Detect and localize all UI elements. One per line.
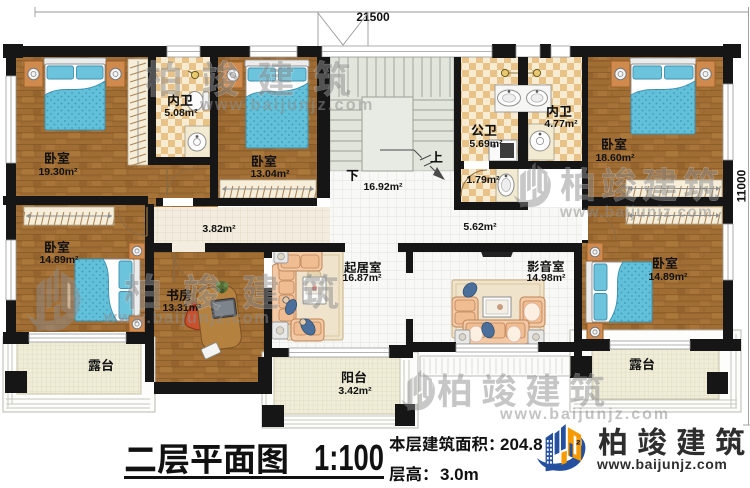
svg-text:16.87m²: 16.87m² xyxy=(342,272,382,284)
svg-text:²: ² xyxy=(576,437,581,452)
svg-text:14.98m²: 14.98m² xyxy=(526,272,566,284)
svg-text:3.42m²: 3.42m² xyxy=(338,385,372,397)
svg-text:3.0m: 3.0m xyxy=(440,465,479,484)
svg-text:www.baijunjz.com: www.baijunjz.com xyxy=(559,204,713,221)
svg-text:3.82m²: 3.82m² xyxy=(202,223,236,235)
svg-text:14.89m²: 14.89m² xyxy=(648,271,688,283)
svg-text:www.baijunjz.com: www.baijunjz.com xyxy=(596,456,727,472)
svg-text:11000: 11000 xyxy=(735,169,749,202)
svg-text:14.89m²: 14.89m² xyxy=(39,254,79,266)
svg-text:1.79m²: 1.79m² xyxy=(466,174,500,186)
svg-text:18.60m²: 18.60m² xyxy=(595,152,635,164)
svg-text:www.baijunjz.com: www.baijunjz.com xyxy=(199,96,374,114)
svg-text:5.69m²: 5.69m² xyxy=(469,138,503,150)
svg-text:5.08m²: 5.08m² xyxy=(164,107,198,119)
svg-text:www.baijunjz.com: www.baijunjz.com xyxy=(103,309,270,327)
svg-text:1:100: 1:100 xyxy=(314,437,384,478)
svg-text:13.04m²: 13.04m² xyxy=(250,168,290,180)
svg-text:16.92m²: 16.92m² xyxy=(363,181,403,193)
svg-text:19.30m²: 19.30m² xyxy=(38,166,78,178)
svg-text:204.8: 204.8 xyxy=(500,435,543,454)
svg-text:www.baijunjz.com: www.baijunjz.com xyxy=(499,406,670,423)
svg-text:4.77m²: 4.77m² xyxy=(544,118,578,130)
svg-text:5.62m²: 5.62m² xyxy=(463,221,497,233)
